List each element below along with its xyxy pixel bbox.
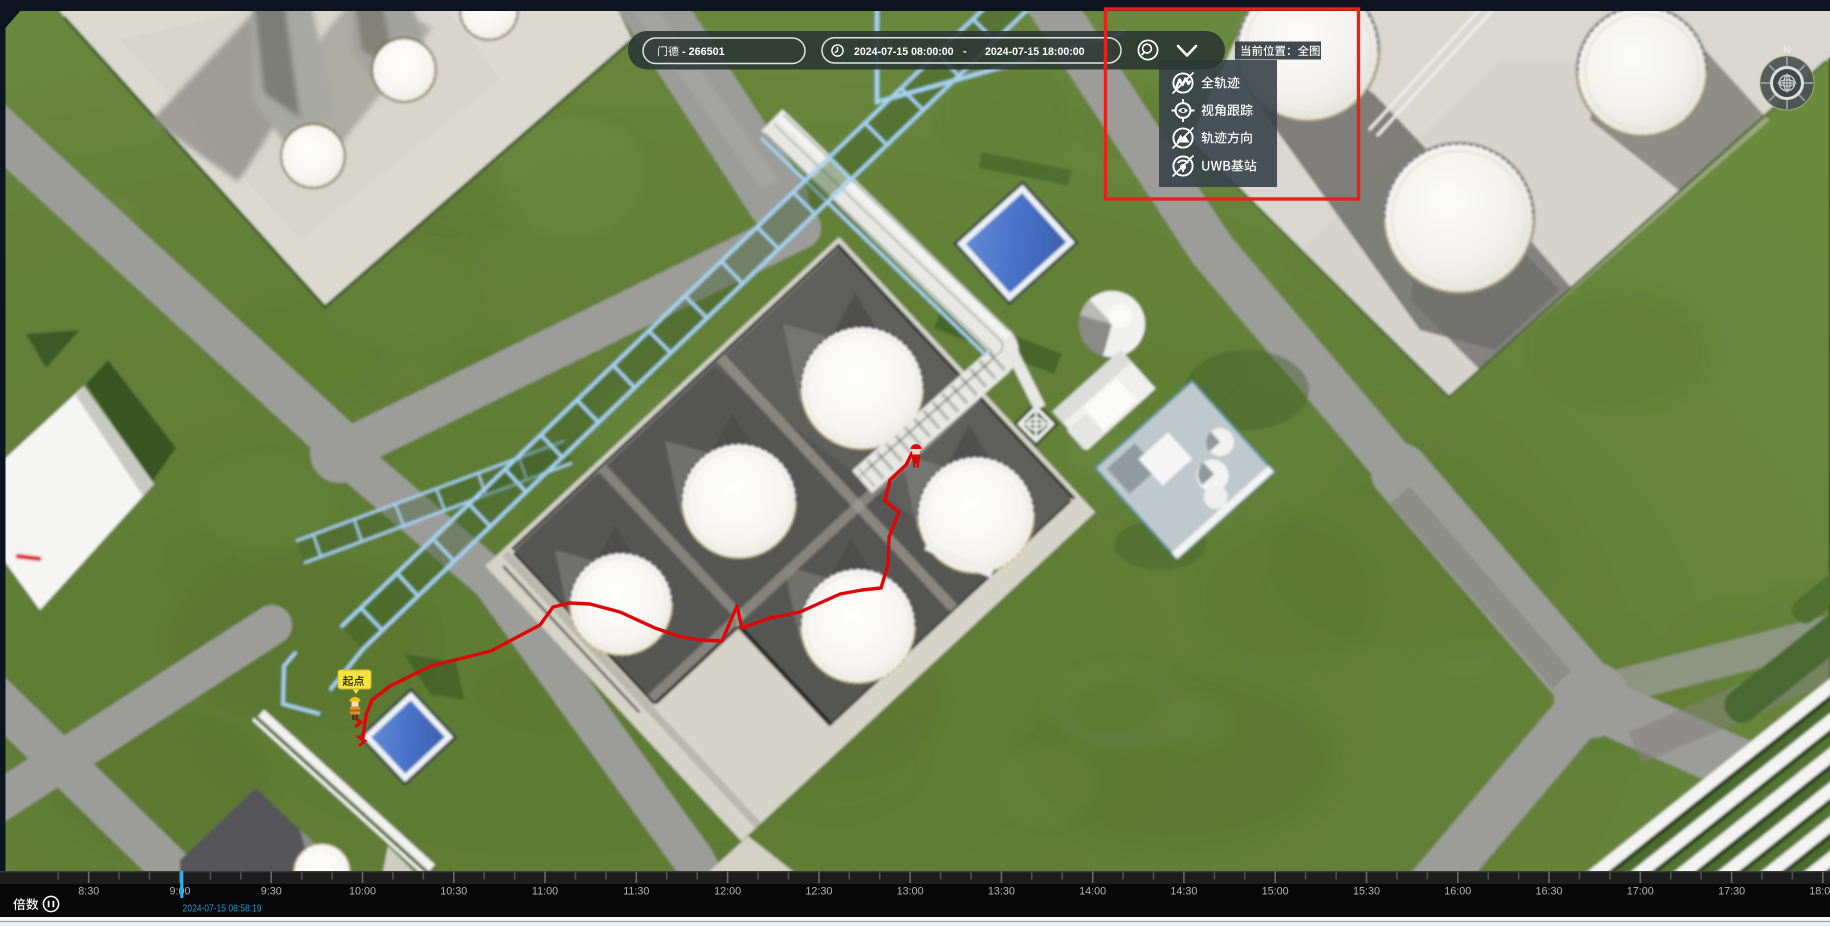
svg-text:2024-07-15 08:58:19: 2024-07-15 08:58:19 <box>183 903 262 915</box>
svg-text:15:30: 15:30 <box>1353 886 1380 898</box>
svg-text:15:00: 15:00 <box>1262 886 1289 898</box>
svg-text:10:00: 10:00 <box>349 886 376 898</box>
svg-text:16:00: 16:00 <box>1444 886 1471 898</box>
svg-text:13:30: 13:30 <box>988 886 1015 898</box>
svg-text:14:30: 14:30 <box>1170 886 1197 898</box>
svg-text:13:00: 13:00 <box>897 886 924 898</box>
svg-text:-: - <box>963 46 967 58</box>
svg-text:11:30: 11:30 <box>623 886 649 898</box>
svg-text:14:00: 14:00 <box>1079 886 1106 898</box>
svg-text:9:00: 9:00 <box>169 886 190 898</box>
svg-text:2024-07-15 08:00:00: 2024-07-15 08:00:00 <box>854 46 954 58</box>
svg-text:12:00: 12:00 <box>714 886 741 898</box>
svg-text:2024-07-15 18:00:00: 2024-07-15 18:00:00 <box>985 46 1085 58</box>
svg-text:16:30: 16:30 <box>1535 886 1562 898</box>
svg-text:N: N <box>1783 44 1791 56</box>
svg-text:18:00: 18:00 <box>1809 886 1830 898</box>
svg-text:- 266501: - 266501 <box>682 46 725 58</box>
svg-text:17:30: 17:30 <box>1718 886 1745 898</box>
svg-text:8:30: 8:30 <box>78 886 99 898</box>
svg-text:9:30: 9:30 <box>261 886 282 898</box>
svg-text:11:00: 11:00 <box>532 886 558 898</box>
svg-text:10:30: 10:30 <box>440 886 467 898</box>
svg-text:12:30: 12:30 <box>805 886 832 898</box>
svg-text:17:00: 17:00 <box>1627 886 1654 898</box>
